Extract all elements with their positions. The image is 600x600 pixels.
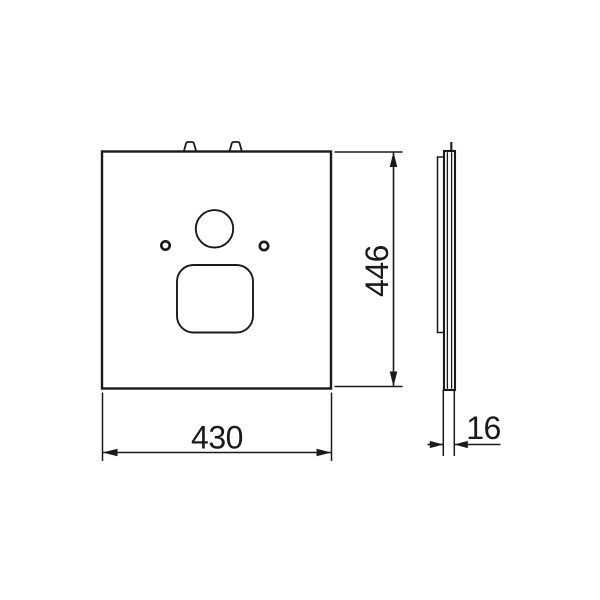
- mounting-tab-right-icon: [230, 142, 242, 152]
- arrowhead-up-icon: [390, 152, 398, 167]
- arrowhead-right-icon: [317, 449, 332, 457]
- dimension-thickness: 16: [428, 390, 501, 457]
- fixing-hole-left: [161, 241, 169, 249]
- mounting-tab-left-icon: [184, 142, 196, 152]
- dimension-width: 430: [103, 393, 332, 462]
- fixing-hole-right: [260, 242, 268, 250]
- drain-cutout: [177, 265, 253, 333]
- dimension-label-thickness: 16: [466, 410, 501, 446]
- arrowhead-down-icon: [390, 372, 398, 387]
- pipe-hole: [196, 210, 233, 247]
- arrowhead-right-icon: [430, 441, 444, 448]
- dimension-height: 446: [335, 152, 403, 387]
- technical-drawing: 430 446 16: [0, 0, 600, 600]
- front-view: [102, 142, 331, 389]
- side-view: [438, 142, 456, 390]
- dimension-label-width: 430: [191, 420, 243, 456]
- glass-panel-edge: [444, 151, 455, 390]
- dimension-label-height: 446: [359, 245, 395, 297]
- arrowhead-left-icon: [103, 449, 118, 457]
- plate-outline: [102, 152, 331, 389]
